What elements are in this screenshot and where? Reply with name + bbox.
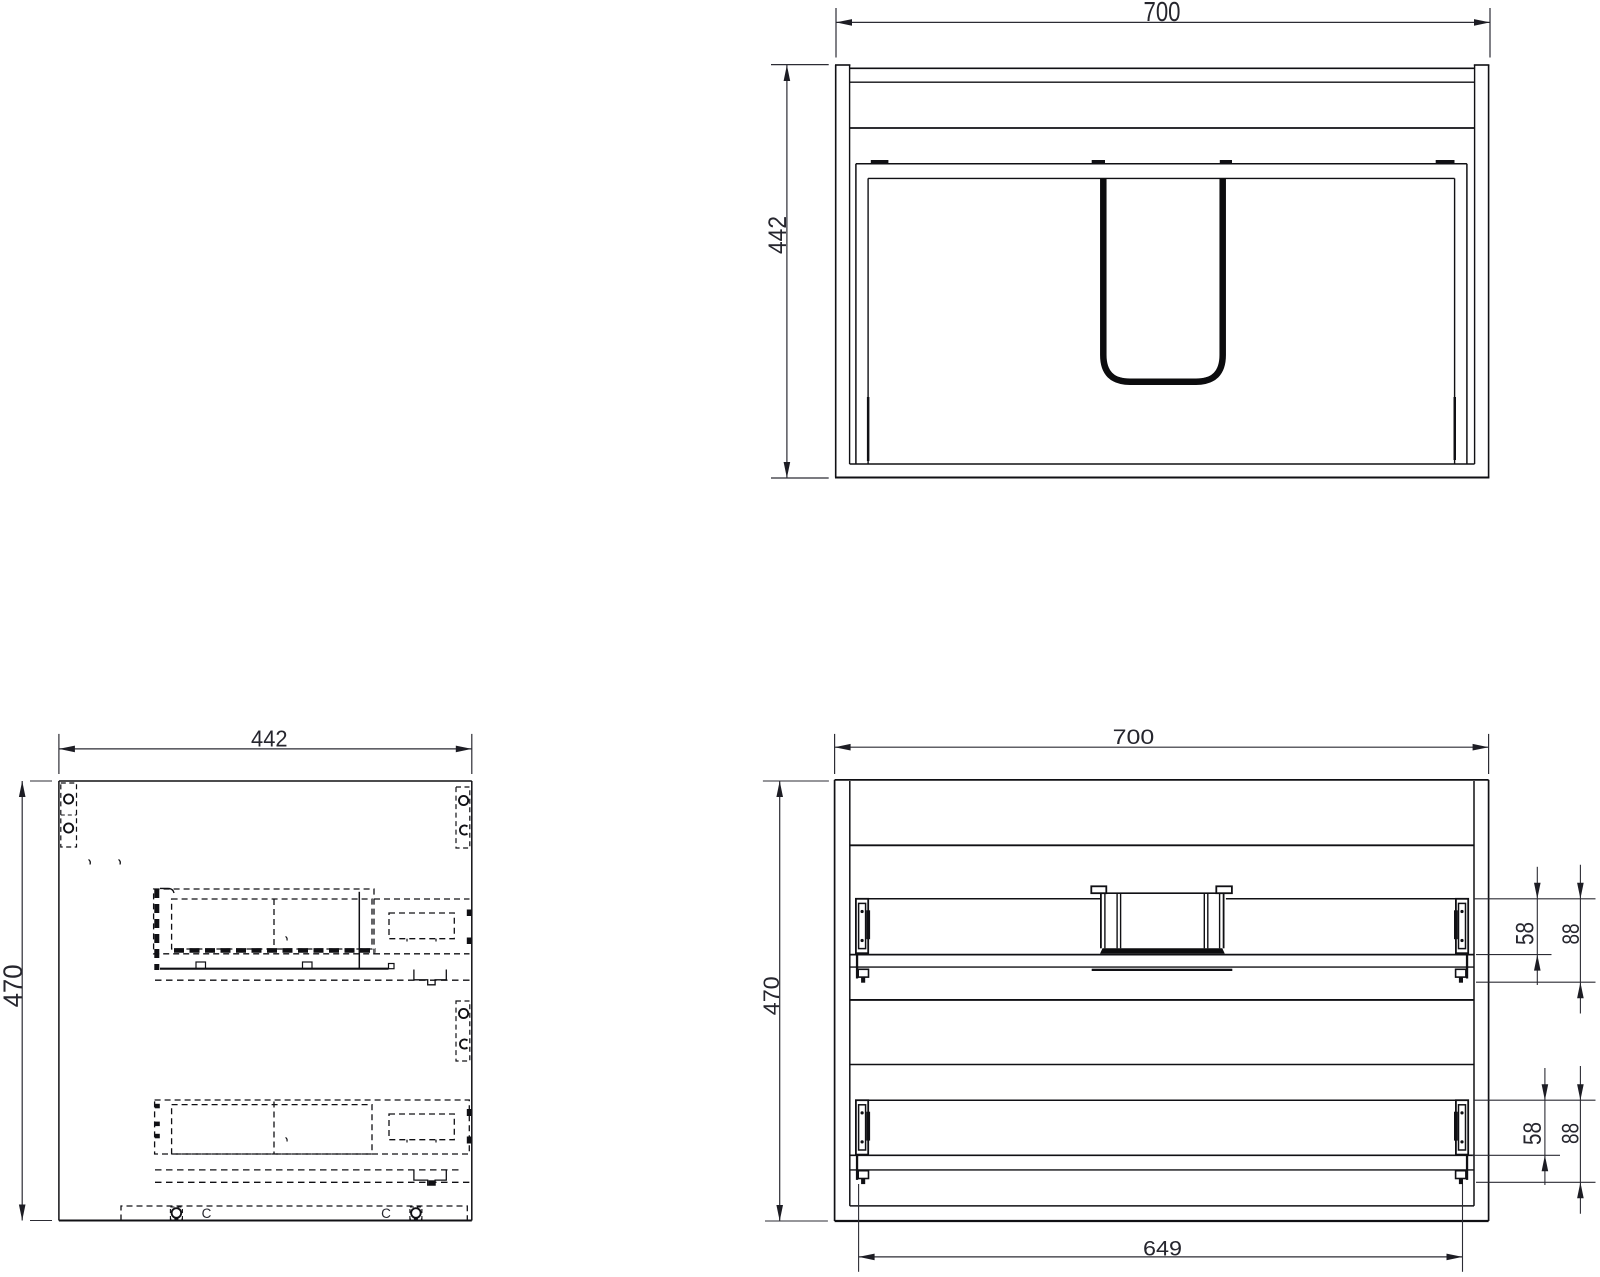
svg-text:700: 700	[1113, 726, 1155, 749]
svg-text:88: 88	[1558, 924, 1585, 945]
svg-text:700: 700	[1144, 0, 1181, 27]
svg-text:58: 58	[1519, 1122, 1547, 1145]
svg-text:649: 649	[1143, 1236, 1182, 1260]
svg-text:88: 88	[1558, 1123, 1585, 1144]
svg-text:58: 58	[1512, 922, 1540, 945]
svg-text:470: 470	[759, 976, 784, 1015]
svg-text:C: C	[381, 1206, 391, 1221]
svg-text:442: 442	[251, 725, 288, 751]
svg-text:470: 470	[0, 964, 28, 1007]
svg-text:442: 442	[764, 216, 792, 254]
svg-text:C: C	[202, 1206, 212, 1221]
